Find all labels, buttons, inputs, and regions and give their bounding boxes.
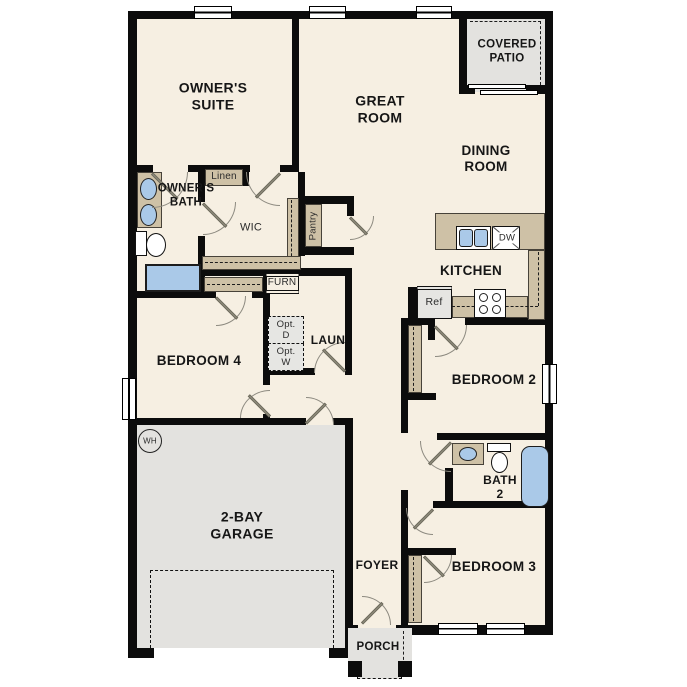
wall-hallcloset-bottom-1 (198, 291, 216, 298)
window-great-room-top-1 (309, 6, 346, 19)
kitchen-sink-basin-1 (459, 229, 473, 247)
label-covered-patio: COVERED PATIO (478, 38, 537, 65)
wic-shelf-bottom-dash (205, 262, 297, 263)
label-dishwasher: DW (498, 232, 516, 243)
wall-ref-backing (408, 287, 417, 319)
pantry-door (350, 216, 374, 240)
wall-wic-pantry (298, 172, 305, 256)
patio-slider-door (468, 84, 526, 89)
patio-dashed-top (470, 21, 541, 22)
bedroom3-door (406, 508, 433, 535)
label-garage: 2-BAY GARAGE (210, 508, 273, 541)
hall-closet-dash (207, 284, 260, 285)
kitchen-counter-right (528, 250, 545, 320)
window-owners-suite-top (194, 6, 232, 19)
label-water-heater: WH (143, 436, 157, 445)
label-bedroom4: BEDROOM 4 (157, 353, 241, 369)
porch-post-right (398, 661, 412, 677)
owners-shower (145, 264, 201, 292)
label-opt-washer: Opt. W (277, 346, 296, 368)
label-furnace: FURN (268, 277, 297, 289)
wall-patio-left (459, 11, 467, 93)
wall-garage-top-1 (128, 418, 306, 425)
label-laundry: LAUN (311, 333, 346, 347)
bedroom3-closet-dash (413, 557, 414, 621)
bath2-toilet-bowl (491, 452, 508, 473)
stove (474, 289, 506, 318)
label-owners-suite: OWNER'S SUITE (179, 79, 247, 112)
patio-slider-door-2 (480, 90, 538, 95)
bath2-sink (459, 447, 477, 461)
bedroom4-door (240, 390, 270, 418)
window-great-room-top-2 (416, 6, 452, 19)
wall-outer-left (128, 11, 137, 658)
wall-pantry-right-stub (347, 196, 354, 216)
window-bedroom3-bottom-2 (486, 623, 525, 635)
bedroom2-closet-dash (413, 327, 414, 391)
label-bedroom2: BEDROOM 2 (452, 372, 536, 388)
label-wic: WIC (240, 222, 262, 235)
patio-dashed-right (540, 21, 541, 85)
wall-suite-bottom-3 (280, 165, 299, 172)
garage-door-opening (154, 648, 329, 658)
label-linen: Linen (211, 171, 236, 183)
wall-b3-closet-top (408, 548, 456, 555)
bath2-toilet-tank (487, 443, 511, 452)
bedroom2-door (435, 325, 467, 357)
bedroom3-closet (408, 555, 422, 623)
wall-bedroom2-bath2 (437, 433, 553, 440)
wall-kitchen-bedroom2-1 (408, 318, 435, 325)
bath2-tub (521, 446, 549, 507)
label-great-room: GREAT ROOM (355, 92, 404, 125)
wic-shelf-bottom (202, 256, 301, 270)
wall-suite-bottom-1 (137, 165, 153, 172)
porch-step (357, 668, 402, 679)
wall-laundry-right (345, 276, 352, 375)
label-bedroom3: BEDROOM 3 (452, 559, 536, 575)
wall-b2-closet-bottom (408, 393, 436, 400)
wall-bath-bottom (137, 291, 198, 298)
bedroom3-closet-door (424, 555, 452, 583)
label-owners-bath: OWNER'S BATH (158, 182, 215, 209)
wall-bedroom4-right-1 (263, 375, 270, 385)
wall-garage-bottom-left (128, 648, 154, 658)
owners-toilet-bowl (146, 233, 166, 257)
owners-suite-door (246, 172, 280, 206)
wall-suite-divider (292, 19, 299, 172)
porch-post-left (348, 661, 362, 677)
label-opt-dryer: Opt. D (277, 319, 296, 341)
wall-hall-right (401, 318, 408, 433)
hall-closet-door (216, 296, 246, 326)
kitchen-counter-dash-v (538, 252, 539, 306)
floor-plan: OWNER'S SUITE GREAT ROOM COVERED PATIO D… (0, 0, 687, 687)
label-foyer: FOYER (356, 558, 399, 572)
label-dining-room: DINING ROOM (461, 143, 510, 175)
wall-pantry-bottom (298, 247, 354, 255)
wall-garage-right (345, 418, 353, 648)
bedroom2-closet (408, 325, 422, 393)
garage-entry-door (306, 397, 334, 425)
label-porch: PORCH (356, 641, 399, 655)
porch-dashed-right (403, 631, 404, 665)
wall-pantry-top (298, 196, 354, 204)
window-bedroom4-left (122, 378, 136, 420)
label-pantry: Pantry (307, 212, 318, 241)
bath2-door (420, 441, 451, 472)
label-fridge: Ref (426, 296, 443, 308)
wall-hallcloset-bottom-2 (252, 291, 263, 298)
front-door (362, 596, 391, 625)
label-kitchen: KITCHEN (440, 263, 502, 279)
label-bath2: BATH 2 (483, 473, 517, 501)
garage-door-dashed (150, 570, 334, 648)
kitchen-sink-basin-2 (474, 229, 488, 247)
window-bedroom2-right (542, 364, 557, 404)
window-bedroom3-bottom-1 (438, 623, 478, 635)
